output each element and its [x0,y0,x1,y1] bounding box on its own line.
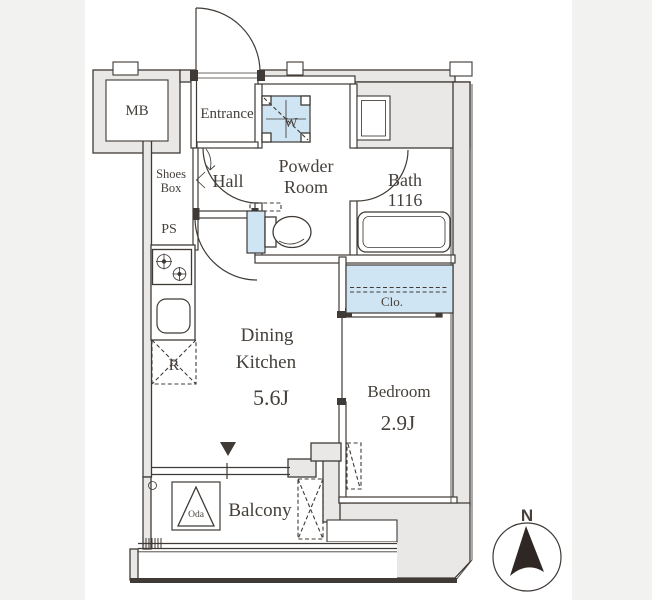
label-balcony: Balcony [228,500,292,521]
building-lower-edge [130,578,457,583]
label-dining-area: 5.6J [253,385,290,410]
compass-north-label: N [521,506,533,525]
toilet-tank [247,211,265,253]
label-mb: MB [125,103,148,119]
label-hatch: Oda [188,510,205,520]
lower-step-box [327,520,397,542]
stove [153,250,192,285]
label-hall: Hall [213,171,244,191]
kitchen-counter [151,245,195,340]
bathtub [358,212,450,252]
lower-balcony-strip [323,542,397,578]
label-powder-2: Room [284,177,328,197]
wall-notch [113,62,138,75]
toilet-bowl [273,217,311,248]
label-powder-1: Powder [279,156,334,176]
label-washer: W [284,116,298,131]
label-bedroom-area: 2.9J [381,411,415,435]
label-bath: Bath [388,170,422,190]
label-bath-size: 1116 [388,190,423,210]
label-dining-1: Dining [241,325,294,346]
label-dining-2: Kitchen [236,352,297,373]
label-fridge: R [169,357,180,374]
label-bedroom: Bedroom [367,382,430,401]
label-closet: Clo. [381,294,403,309]
label-shoes-box-1: Shoes [156,167,186,181]
wall-notch [450,62,472,76]
label-shoes-box-2: Box [161,181,183,195]
label-ps: PS [161,222,177,237]
wall-notch [287,62,303,75]
bath-window [357,96,390,140]
floor-plan: MB Entrance Shoes Box Hall PS W Powder R… [0,0,652,600]
label-entrance: Entrance [200,106,254,122]
